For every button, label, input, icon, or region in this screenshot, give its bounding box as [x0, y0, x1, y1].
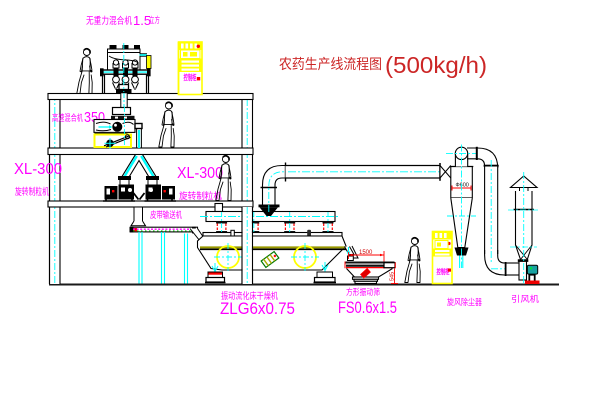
svg-text:皮带输送机: 皮带输送机: [150, 209, 182, 220]
svg-text:1500: 1500: [359, 250, 373, 256]
svg-text:545: 545: [390, 272, 396, 281]
svg-text:旋转制粒机: 旋转制粒机: [15, 186, 49, 198]
svg-text:农药生产线流程图: 农药生产线流程图: [279, 56, 382, 72]
svg-text:ZLG6x0.75: ZLG6x0.75: [220, 300, 295, 318]
svg-text:立方: 立方: [149, 15, 160, 25]
svg-text:旋转制粒机: 旋转制粒机: [179, 190, 222, 201]
svg-text:控制柜: 控制柜: [437, 267, 450, 276]
svg-text:旋风除尘器: 旋风除尘器: [447, 297, 482, 307]
svg-text:XL-300: XL-300: [177, 165, 223, 182]
svg-text:XL-300: XL-300: [14, 161, 62, 178]
svg-text:控制柜: 控制柜: [184, 72, 197, 82]
svg-text:高速混合机: 高速混合机: [52, 112, 83, 123]
svg-text:引风机: 引风机: [511, 294, 540, 304]
svg-text:方形振动筛: 方形振动筛: [346, 287, 380, 297]
svg-text:(500kg/h): (500kg/h): [385, 52, 487, 78]
svg-text:无重力混合机: 无重力混合机: [86, 15, 132, 27]
svg-text:FS0.6x1.5: FS0.6x1.5: [338, 299, 397, 317]
